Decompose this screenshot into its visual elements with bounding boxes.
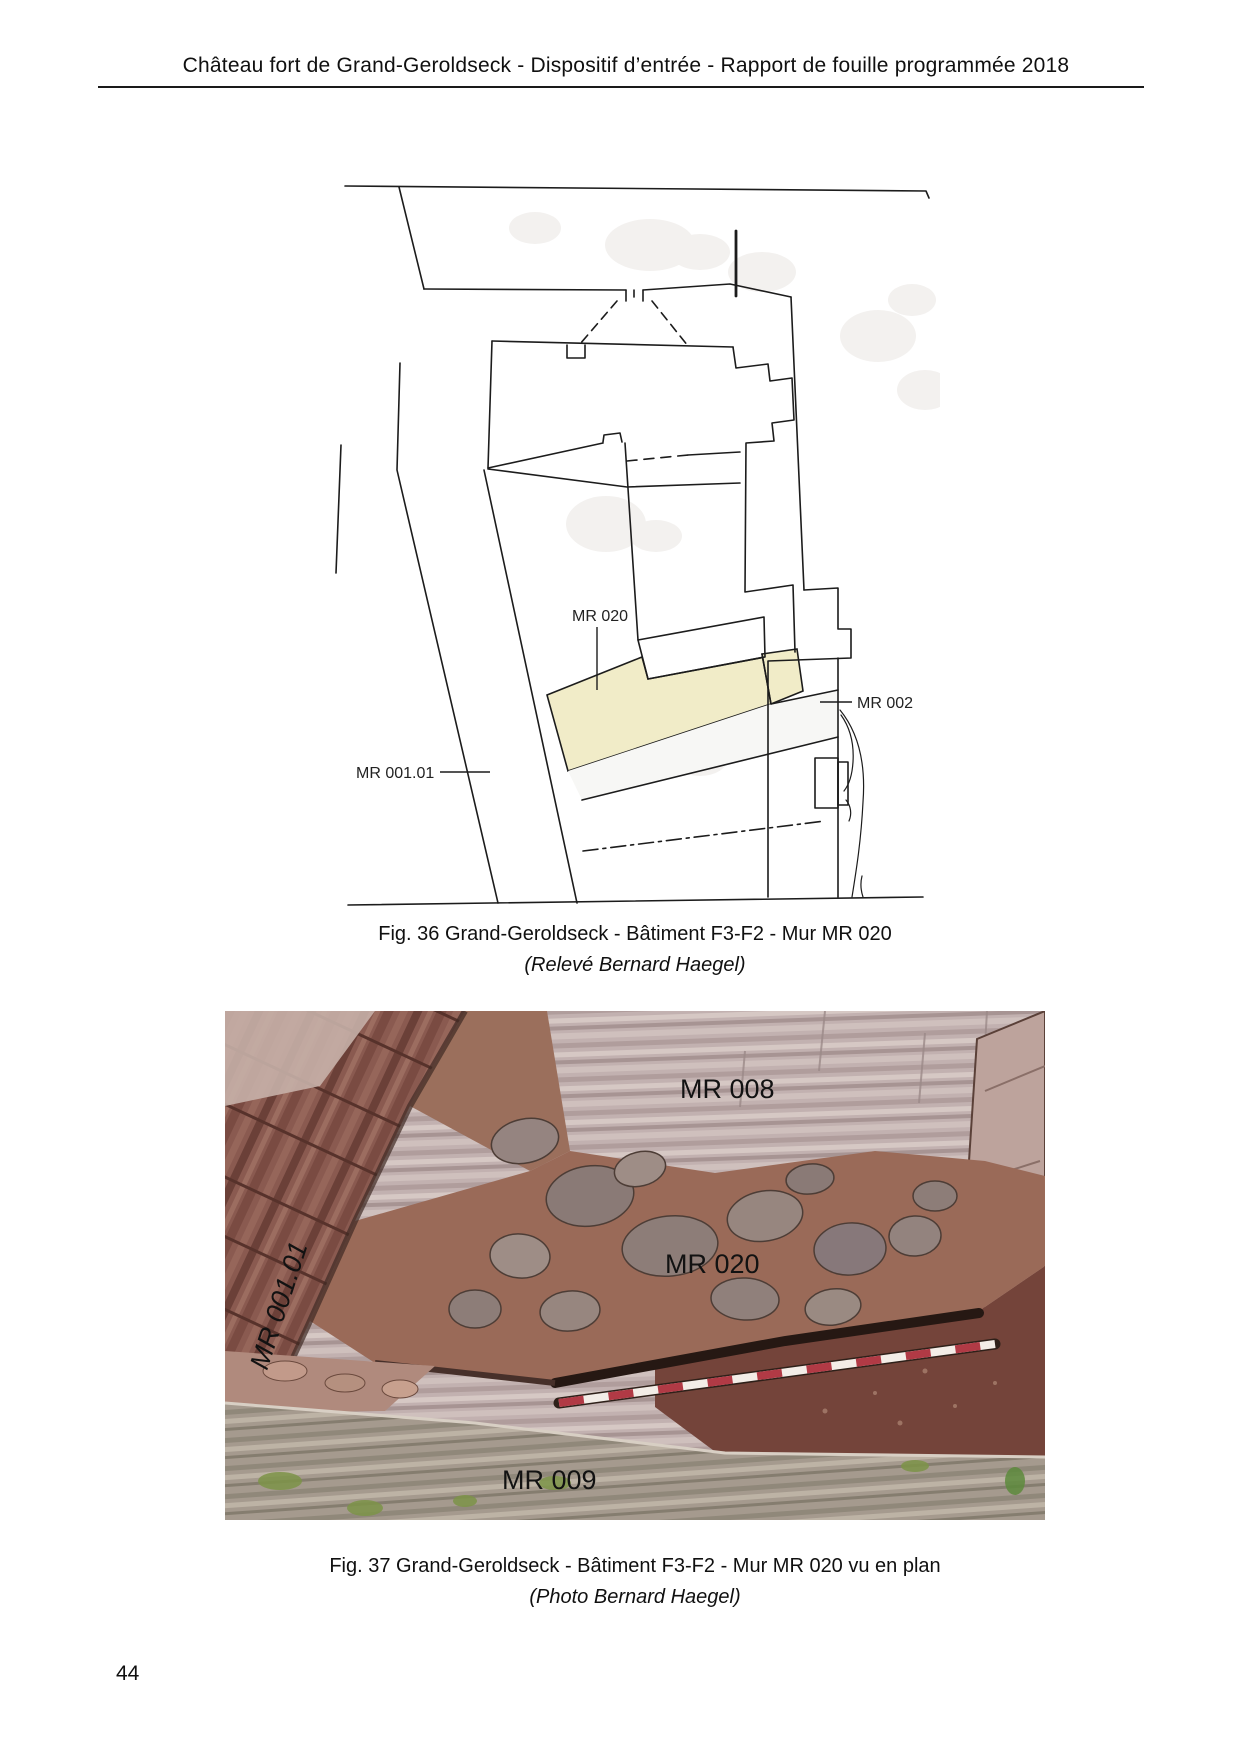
page-number: 44 <box>116 1662 139 1686</box>
plan-label-mr001-01: MR 001.01 <box>356 765 434 782</box>
report-page: Château fort de Grand-Geroldseck - Dispo… <box>0 0 1241 1755</box>
fig36-caption: Fig. 36 Grand-Geroldseck - Bâtiment F3-F… <box>150 919 1120 981</box>
plan-wall-lines <box>336 186 929 905</box>
photo-label-mr020: MR 020 <box>665 1249 760 1279</box>
fig36-caption-line2: (Relevé Bernard Haegel) <box>150 950 1120 981</box>
page-header-title: Château fort de Grand-Geroldseck - Dispo… <box>66 54 1186 78</box>
fig36-caption-line1: Fig. 36 Grand-Geroldseck - Bâtiment F3-F… <box>150 919 1120 950</box>
fig37-photo: MR 008 MR 020 MR 009 MR 001.01 <box>225 1011 1045 1520</box>
fig37-photo-canvas: MR 008 MR 020 MR 009 MR 001.01 <box>225 1011 1045 1520</box>
fig36-plan-drawing: MR 020 MR 001.01 MR 002 <box>300 150 940 920</box>
photo-label-mr009: MR 009 <box>502 1465 597 1495</box>
photo-label-mr008: MR 008 <box>680 1074 775 1104</box>
plan-label-mr002: MR 002 <box>857 695 913 712</box>
plan-label-mr020: MR 020 <box>572 608 628 625</box>
fig37-caption: Fig. 37 Grand-Geroldseck - Bâtiment F3-F… <box>150 1551 1120 1613</box>
fig37-caption-line2: (Photo Bernard Haegel) <box>150 1582 1120 1613</box>
fig37-caption-line1: Fig. 37 Grand-Geroldseck - Bâtiment F3-F… <box>150 1551 1120 1582</box>
header-rule <box>98 86 1144 88</box>
